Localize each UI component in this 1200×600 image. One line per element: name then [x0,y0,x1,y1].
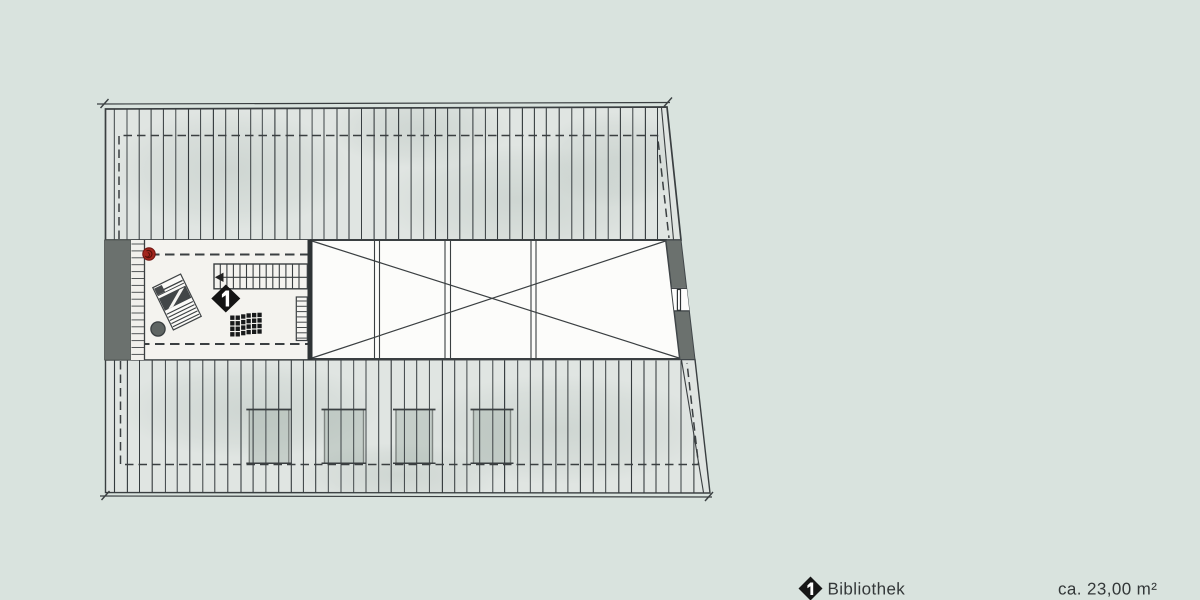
svg-text:Bibliothek: Bibliothek [828,580,906,599]
svg-text:ca. 23,00 m²: ca. 23,00 m² [1058,580,1157,599]
